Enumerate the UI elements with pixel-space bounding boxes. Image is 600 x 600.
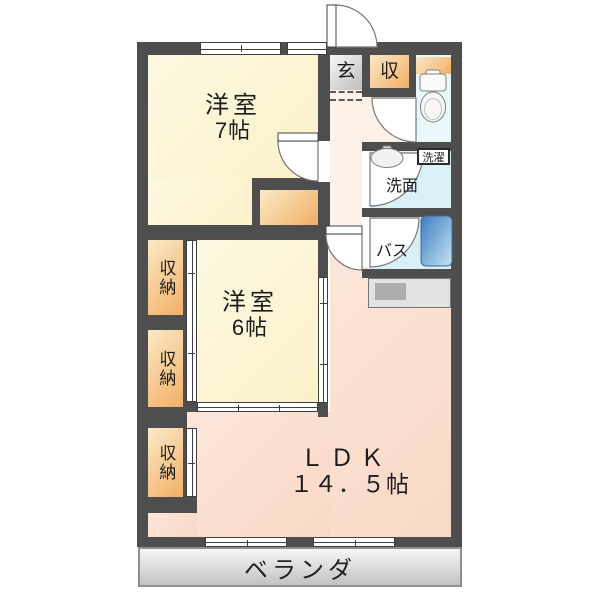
floor-plan: ベランダ 収納 収納 収納 収	[0, 0, 600, 600]
door-leaf-entrance	[327, 5, 336, 47]
bathtub-icon	[421, 216, 452, 266]
genkan-label: 玄	[330, 62, 362, 82]
bathroom-label: バス	[368, 244, 416, 261]
door-leaf-hall-ldk	[326, 226, 362, 234]
door-arc-entrance	[335, 5, 377, 47]
laundry-box: 洗濯	[417, 148, 450, 165]
sink-icon	[371, 146, 403, 168]
room-ldk-name: ＬＤＫ	[280, 446, 410, 471]
entry-storage-label: 収	[380, 62, 399, 82]
toilet-icon	[420, 70, 446, 122]
entry-storage: 収	[370, 55, 409, 88]
room-western-7-size: 7帖	[173, 119, 293, 142]
door-arc-hall-ldk	[326, 234, 362, 270]
laundry-label: 洗濯	[423, 149, 445, 165]
room-western-6-size: 6帖	[190, 316, 310, 339]
washroom-label: 洗面	[372, 179, 432, 196]
room-ldk-size: １４．５帖	[260, 472, 440, 496]
door-arc-toilet	[372, 98, 416, 142]
room-western-6-name: 洋室	[190, 290, 310, 315]
room-western-7-name: 洋室	[173, 93, 293, 118]
door-arc-room7	[278, 141, 318, 181]
